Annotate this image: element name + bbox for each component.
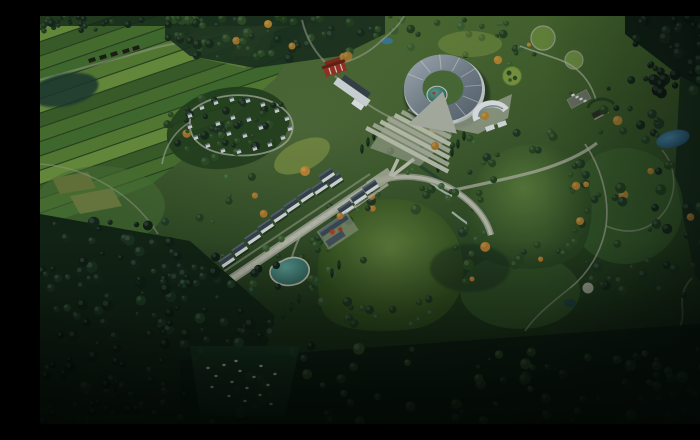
aerial-rendering	[40, 16, 700, 424]
scene-canvas	[40, 16, 700, 424]
right-shade	[40, 16, 700, 424]
